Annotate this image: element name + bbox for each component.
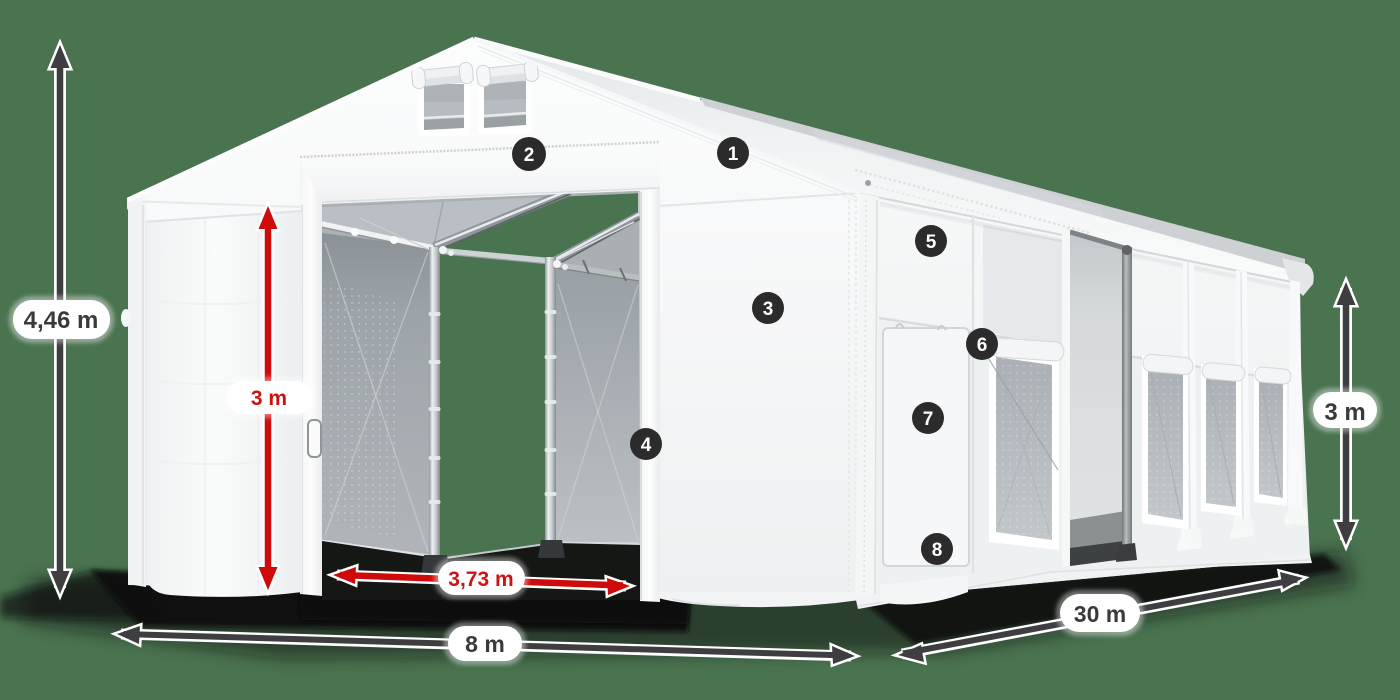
svg-text:3 m: 3 m <box>251 387 287 410</box>
svg-text:8 m: 8 m <box>465 631 505 657</box>
svg-text:3 m: 3 m <box>1324 399 1365 426</box>
svg-text:30 m: 30 m <box>1074 601 1126 627</box>
svg-text:2: 2 <box>524 145 535 166</box>
svg-text:3,73 m: 3,73 m <box>448 568 513 591</box>
svg-text:4,46 m: 4,46 m <box>24 307 99 334</box>
svg-text:4: 4 <box>641 435 652 456</box>
svg-text:1: 1 <box>728 144 739 165</box>
svg-text:5: 5 <box>926 232 937 253</box>
svg-text:3: 3 <box>763 299 774 320</box>
svg-text:6: 6 <box>977 335 988 356</box>
svg-text:8: 8 <box>932 540 943 561</box>
svg-text:7: 7 <box>923 409 934 430</box>
